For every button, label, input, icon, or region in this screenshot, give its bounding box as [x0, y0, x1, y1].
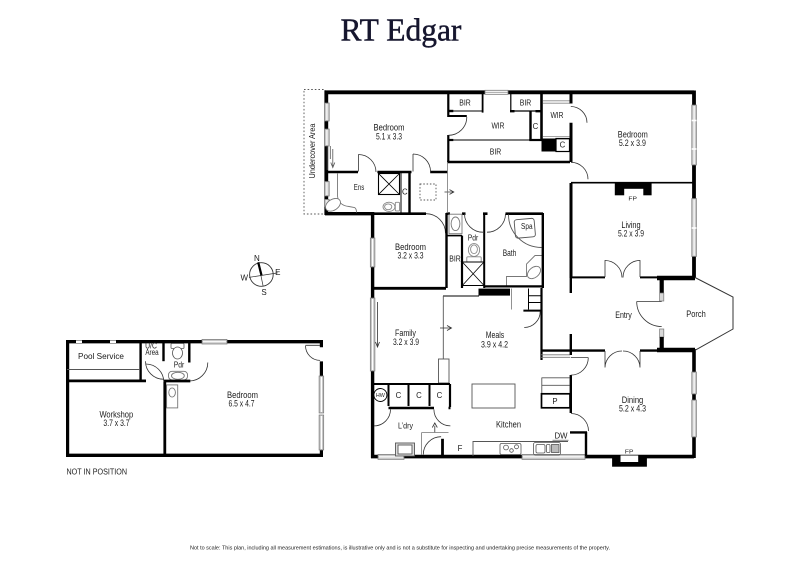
- svg-text:F: F: [458, 444, 463, 453]
- svg-text:5.2 x 4.3: 5.2 x 4.3: [619, 404, 646, 414]
- svg-text:S: S: [261, 288, 266, 297]
- svg-text:C: C: [396, 391, 402, 400]
- svg-text:W: W: [241, 274, 249, 283]
- svg-text:Pdr: Pdr: [468, 233, 479, 242]
- svg-text:Pdr: Pdr: [174, 360, 185, 369]
- svg-text:Pool Service: Pool Service: [78, 352, 124, 361]
- svg-text:Area: Area: [145, 348, 159, 357]
- svg-text:FP: FP: [625, 450, 634, 456]
- svg-text:C: C: [560, 141, 566, 150]
- svg-text:3.2 x 3.9: 3.2 x 3.9: [393, 337, 419, 347]
- svg-text:C: C: [416, 391, 422, 400]
- svg-text:DW: DW: [555, 432, 569, 441]
- svg-text:Kitchen: Kitchen: [496, 419, 521, 429]
- svg-text:Spa: Spa: [521, 222, 533, 231]
- svg-text:NOT IN POSITION: NOT IN POSITION: [67, 467, 128, 476]
- svg-text:L’dry: L’dry: [398, 422, 413, 431]
- svg-text:3.2 x 3.3: 3.2 x 3.3: [398, 251, 424, 261]
- svg-text:BIR: BIR: [520, 99, 532, 108]
- svg-text:E: E: [275, 268, 280, 277]
- svg-text:5.2 x 3.9: 5.2 x 3.9: [618, 229, 644, 239]
- svg-text:WIR: WIR: [551, 111, 564, 120]
- svg-text:HW: HW: [376, 393, 386, 399]
- svg-text:P: P: [552, 397, 557, 406]
- svg-text:WIR: WIR: [492, 122, 505, 131]
- svg-text:3.9 x 4.2: 3.9 x 4.2: [481, 339, 508, 349]
- svg-text:Ens: Ens: [354, 183, 365, 192]
- svg-text:Entry: Entry: [615, 310, 632, 320]
- svg-text:BIR: BIR: [490, 147, 502, 156]
- svg-text:C: C: [533, 122, 539, 131]
- svg-text:3.7 x 3.7: 3.7 x 3.7: [103, 418, 129, 428]
- svg-text:FP: FP: [628, 197, 637, 203]
- svg-text:Bath: Bath: [503, 248, 517, 258]
- svg-text:RT Edgar: RT Edgar: [341, 13, 462, 48]
- svg-text:C: C: [402, 188, 408, 197]
- svg-text:BIR: BIR: [459, 99, 471, 108]
- svg-text:C: C: [437, 391, 443, 400]
- svg-text:N: N: [254, 254, 260, 263]
- svg-text:Undercover Area: Undercover Area: [308, 123, 317, 179]
- svg-text:5.2 x 3.9: 5.2 x 3.9: [619, 138, 646, 148]
- svg-text:Porch: Porch: [686, 309, 706, 319]
- svg-text:5.1 x 3.3: 5.1 x 3.3: [376, 131, 402, 141]
- svg-text:6.5 x 4.7: 6.5 x 4.7: [229, 399, 255, 409]
- svg-text:BIR: BIR: [449, 255, 461, 264]
- svg-text:Not to scale: This plan, inclu: Not to scale: This plan, including all m…: [190, 546, 610, 552]
